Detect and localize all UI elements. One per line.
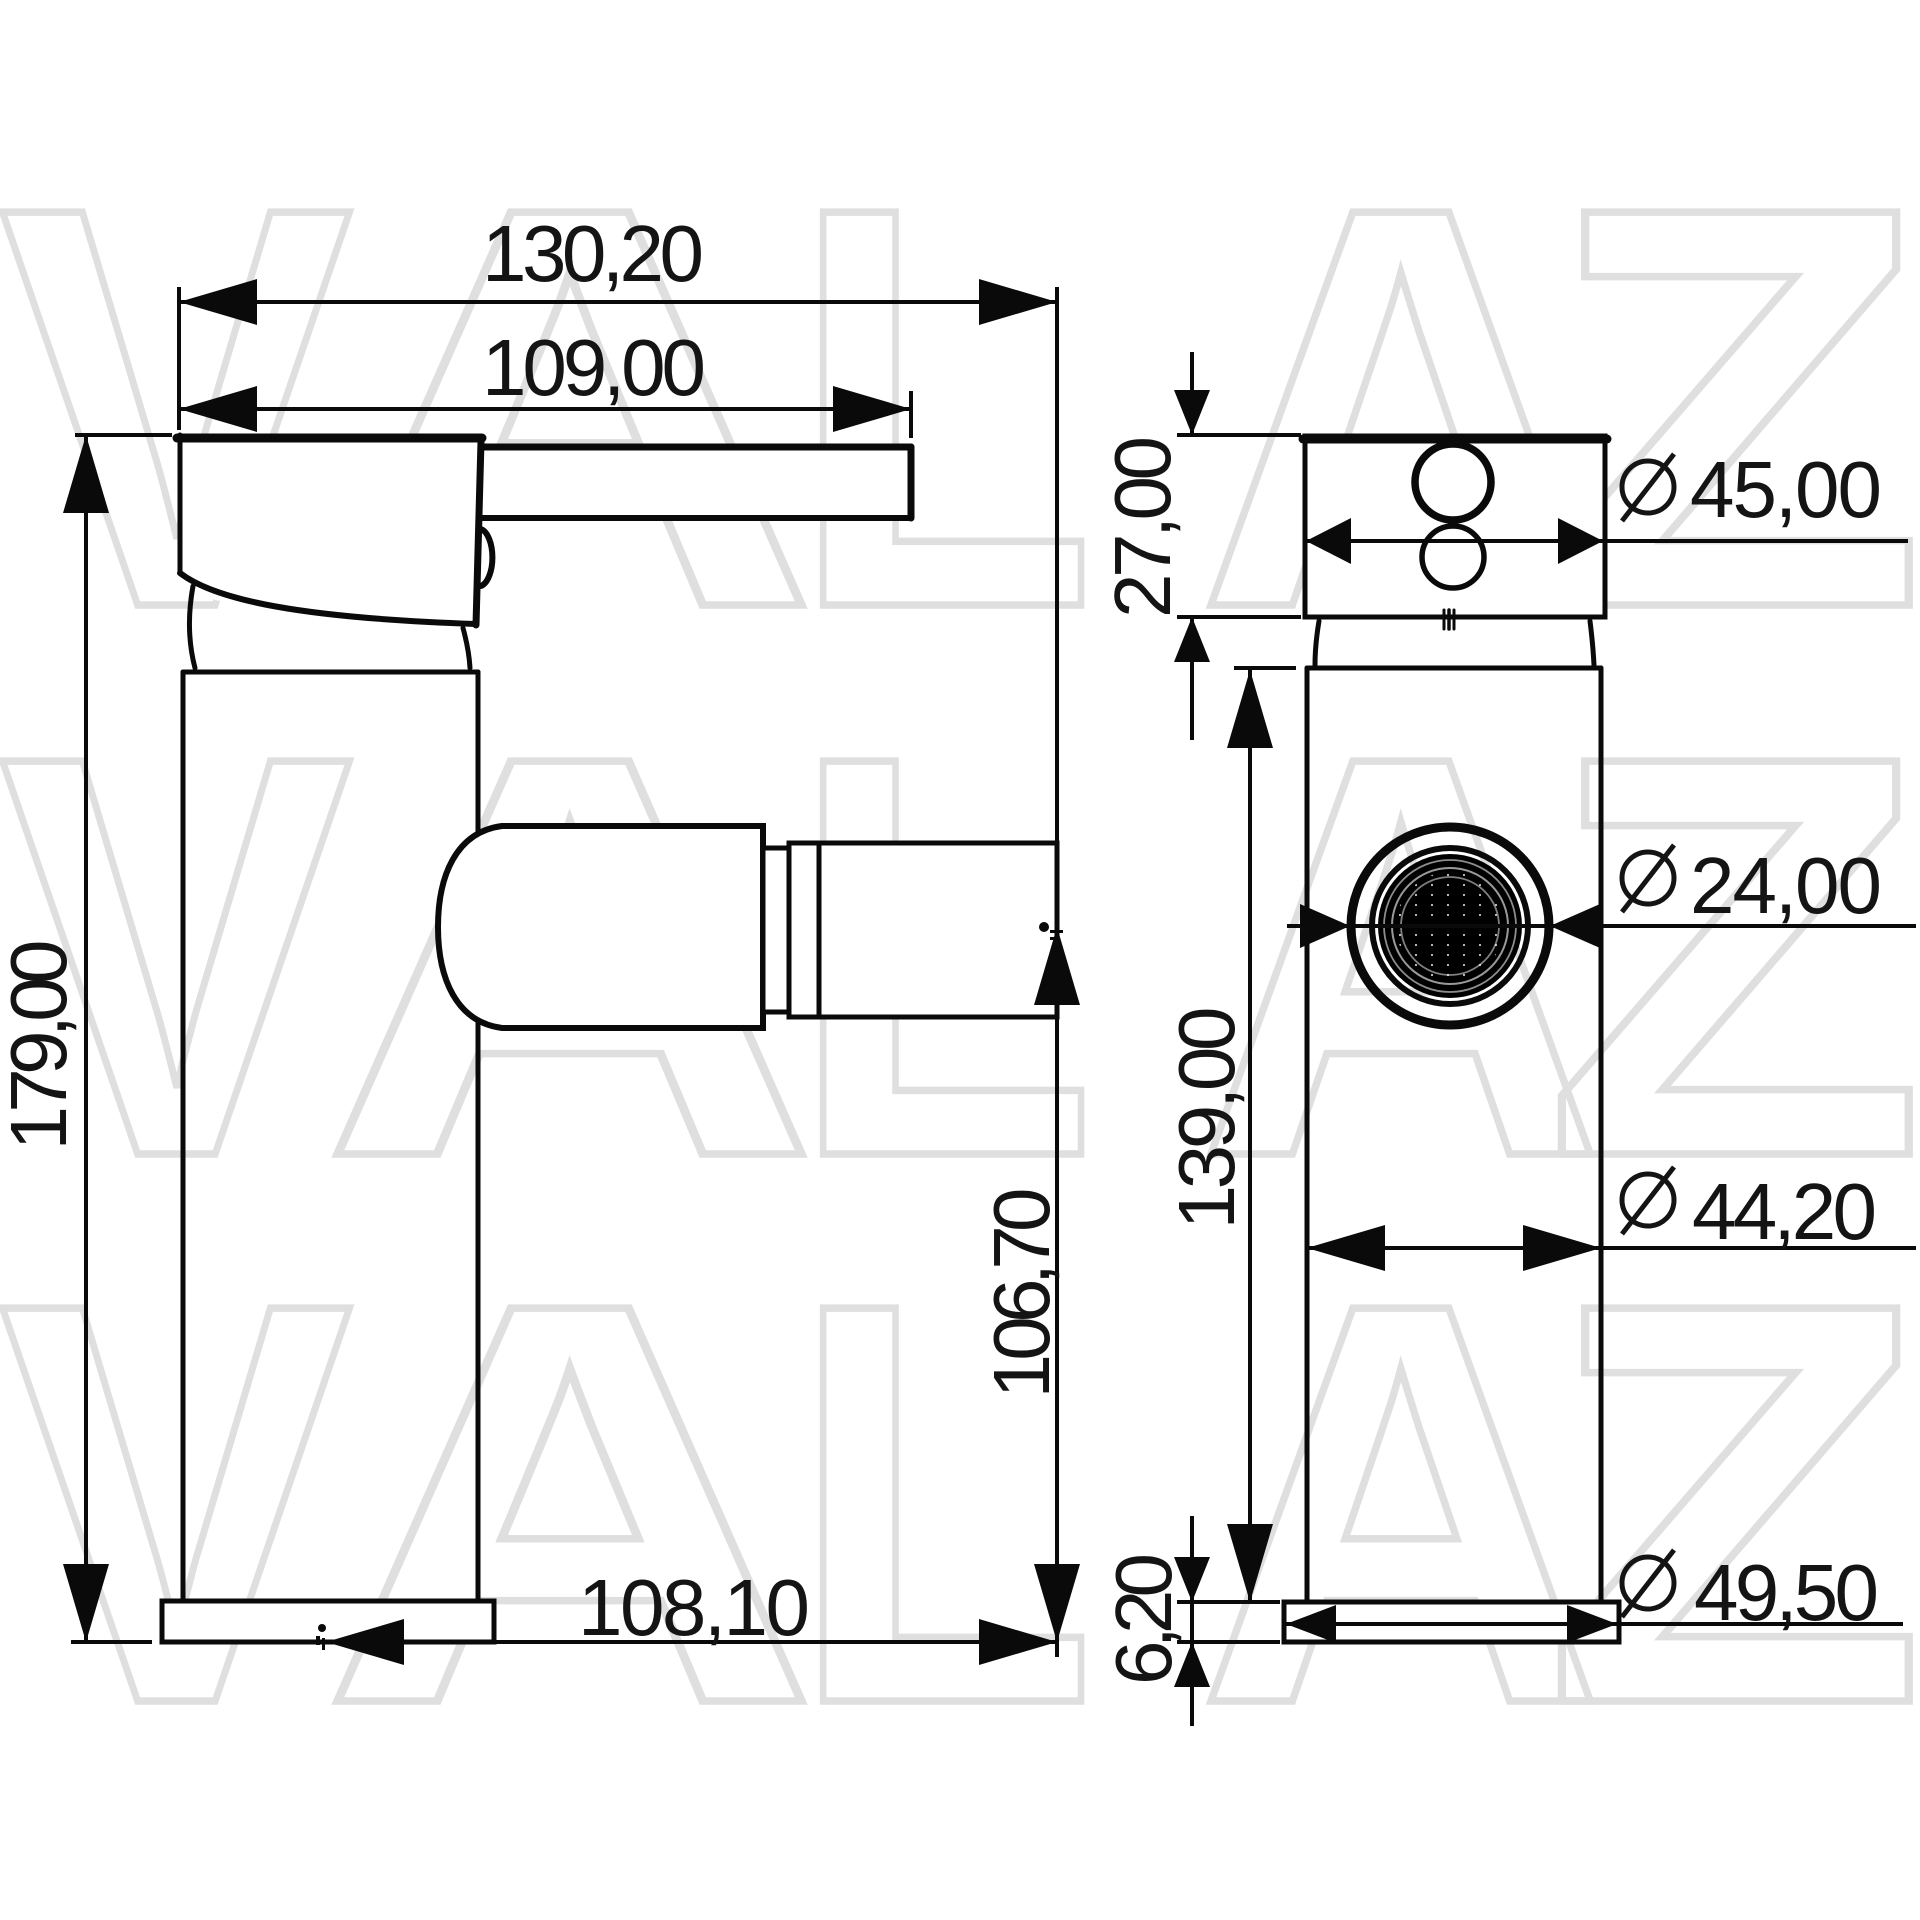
svg-text:139,00: 139,00 bbox=[1162, 1007, 1251, 1230]
svg-text:24,00: 24,00 bbox=[1690, 841, 1882, 930]
svg-text:109,00: 109,00 bbox=[482, 323, 706, 412]
svg-text:6,20: 6,20 bbox=[1099, 1553, 1188, 1685]
svg-text:108,10: 108,10 bbox=[578, 1563, 810, 1652]
svg-text:106,70: 106,70 bbox=[977, 1188, 1066, 1399]
svg-text:V: V bbox=[0, 1184, 356, 1822]
svg-text:27,00: 27,00 bbox=[1098, 436, 1187, 618]
svg-text:130,20: 130,20 bbox=[482, 209, 704, 298]
svg-text:44,20: 44,20 bbox=[1692, 1167, 1877, 1256]
svg-text:49,50: 49,50 bbox=[1694, 1548, 1879, 1637]
svg-text:45,00: 45,00 bbox=[1690, 445, 1882, 534]
svg-text:Z: Z bbox=[1543, 89, 1920, 726]
svg-text:A: A bbox=[321, 1185, 820, 1823]
svg-text:179,00: 179,00 bbox=[0, 940, 83, 1151]
